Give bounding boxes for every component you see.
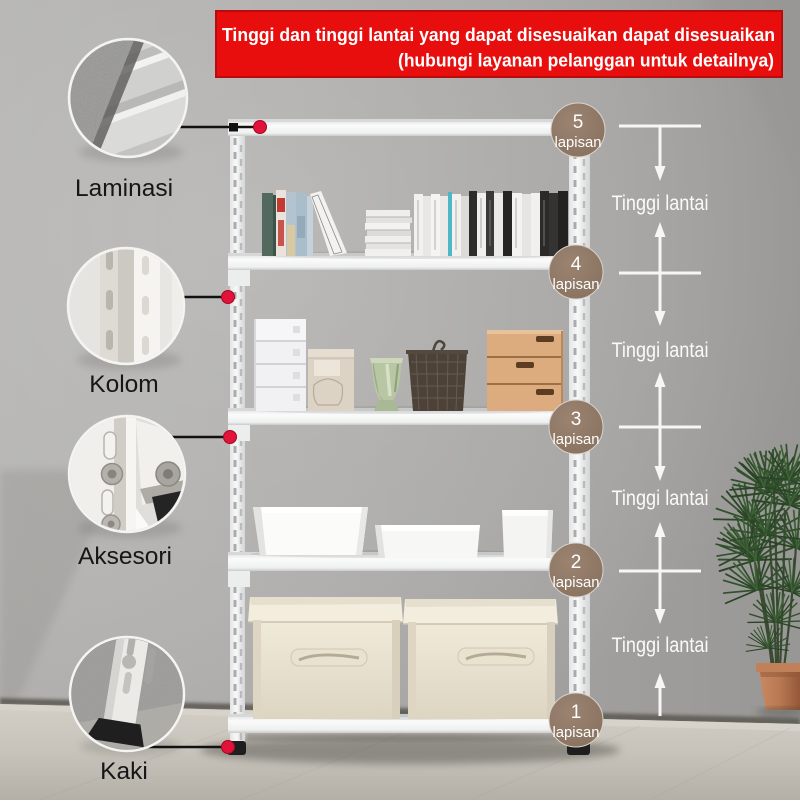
svg-text:Laminasi: Laminasi (75, 175, 173, 202)
svg-text:2: 2 (571, 552, 582, 573)
svg-text:1: 1 (571, 702, 582, 723)
svg-text:4: 4 (571, 254, 582, 275)
svg-text:Kolom: Kolom (89, 371, 158, 398)
svg-text:lapisan: lapisan (555, 135, 602, 151)
svg-text:lapisan: lapisan (553, 432, 600, 448)
svg-text:lapisan: lapisan (553, 725, 600, 741)
svg-text:(hubungi layanan pelanggan unt: (hubungi layanan pelanggan untuk detailn… (398, 50, 774, 71)
svg-text:Tinggi lantai: Tinggi lantai (612, 634, 709, 657)
svg-text:Tinggi lantai: Tinggi lantai (612, 192, 709, 215)
svg-text:Kaki: Kaki (100, 758, 148, 785)
svg-text:Tinggi dan tinggi lantai yang: Tinggi dan tinggi lantai yang dapat dise… (222, 24, 775, 45)
svg-text:Aksesori: Aksesori (78, 543, 172, 570)
svg-text:5: 5 (573, 112, 584, 133)
svg-text:3: 3 (571, 409, 582, 430)
svg-text:Tinggi lantai: Tinggi lantai (612, 339, 709, 362)
svg-text:lapisan: lapisan (553, 277, 600, 293)
svg-text:lapisan: lapisan (553, 575, 600, 591)
svg-text:Tinggi lantai: Tinggi lantai (612, 487, 709, 510)
